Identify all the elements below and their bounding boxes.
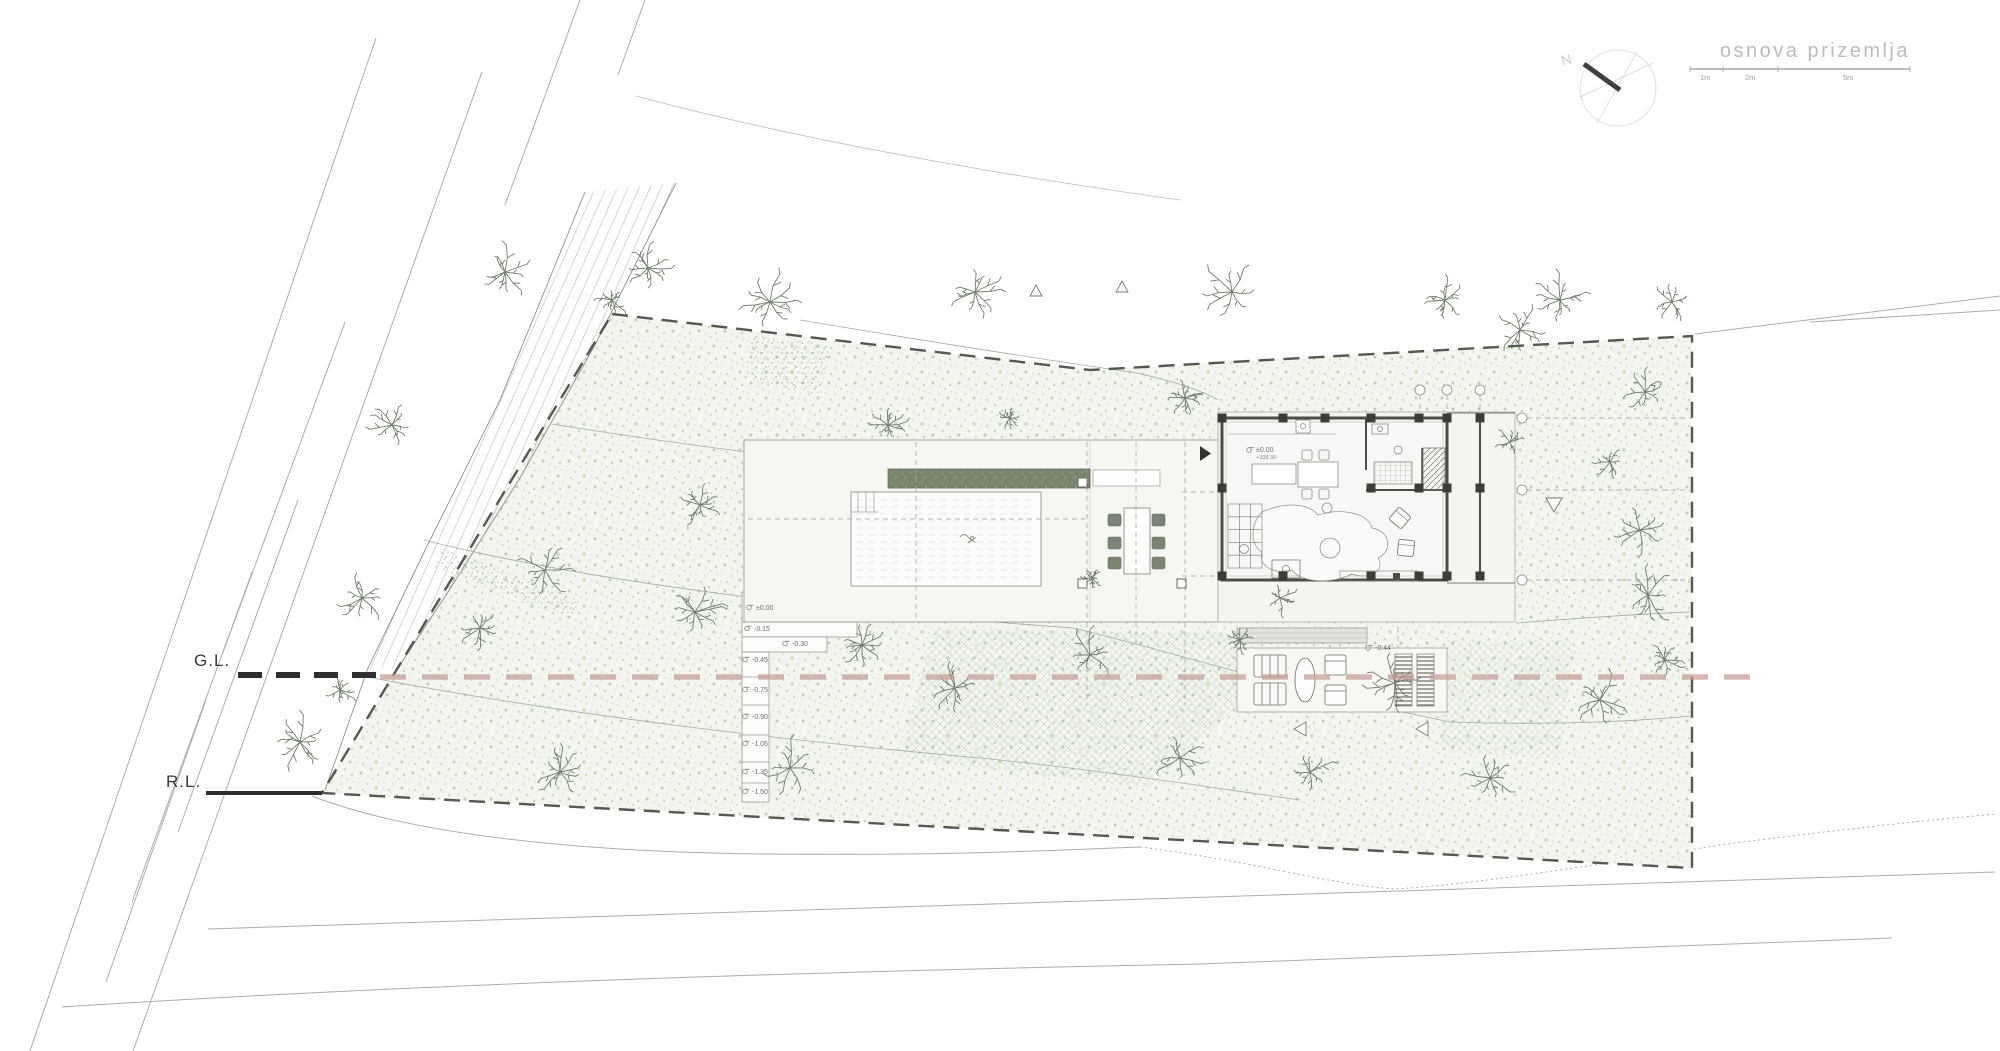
level-marker-value: ±0.00 bbox=[756, 605, 774, 612]
drawing-title: osnova prizemlja bbox=[1720, 40, 1910, 62]
outdoor-dining bbox=[1108, 508, 1165, 574]
gl-label: G.L. bbox=[194, 651, 230, 670]
terrace-bench bbox=[1093, 470, 1160, 486]
level-marker-value: -0.30 bbox=[792, 641, 808, 648]
scale-label-2m: 2m bbox=[1745, 73, 1755, 82]
site-plan-drawing: ±0.00 +338.30 -0.44 bbox=[0, 0, 2000, 1051]
swimming-pool bbox=[851, 492, 1041, 586]
level-marker-value: -1.50 bbox=[752, 789, 768, 796]
scale-label-1m: 1m bbox=[1700, 73, 1710, 82]
staircase bbox=[1422, 448, 1445, 490]
level-marker-value: -1.35 bbox=[752, 769, 768, 776]
interior-level-absolute: +338.30 bbox=[1256, 455, 1276, 461]
level-marker-value: -0.45 bbox=[752, 657, 768, 664]
level-marker-value: -1.05 bbox=[752, 741, 768, 748]
main-terrace bbox=[744, 440, 1218, 622]
site-plan-sheet: ±0.00 +338.30 -0.44 bbox=[0, 0, 2000, 1051]
oval-tub bbox=[1295, 658, 1315, 702]
level-marker-value: -0.90 bbox=[752, 714, 768, 721]
slope-crosshatch-2 bbox=[1440, 640, 1575, 760]
level-marker-value: -0.15 bbox=[754, 626, 770, 633]
rl-label: R.L. bbox=[166, 772, 201, 791]
interior-level-relative: ±0.00 bbox=[1256, 447, 1274, 454]
house-plan: ±0.00 +338.30 bbox=[1200, 412, 1515, 622]
level-marker-value: -0.75 bbox=[752, 687, 768, 694]
scale-label-5m: 5m bbox=[1843, 73, 1853, 82]
terrace-level-value: -0.44 bbox=[1375, 645, 1391, 652]
